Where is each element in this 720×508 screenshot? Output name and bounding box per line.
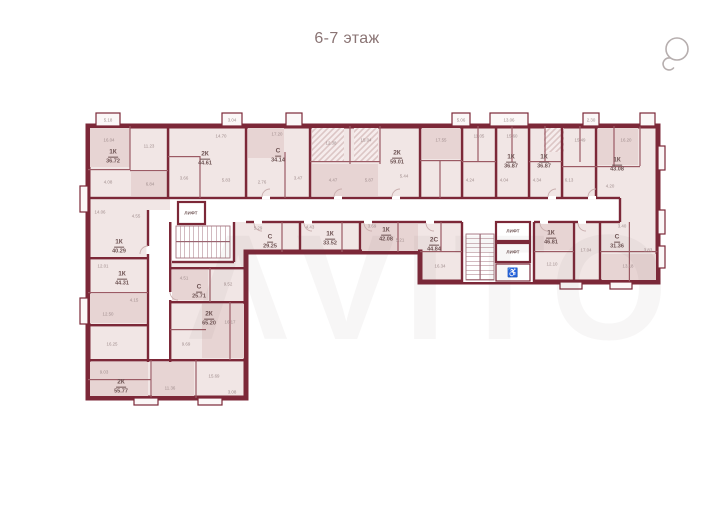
floor-plan[interactable] (0, 0, 720, 508)
staircase-left (176, 226, 230, 258)
floorplan-viewer: 6-7 этаж (0, 0, 720, 508)
staircase-right (466, 234, 494, 280)
